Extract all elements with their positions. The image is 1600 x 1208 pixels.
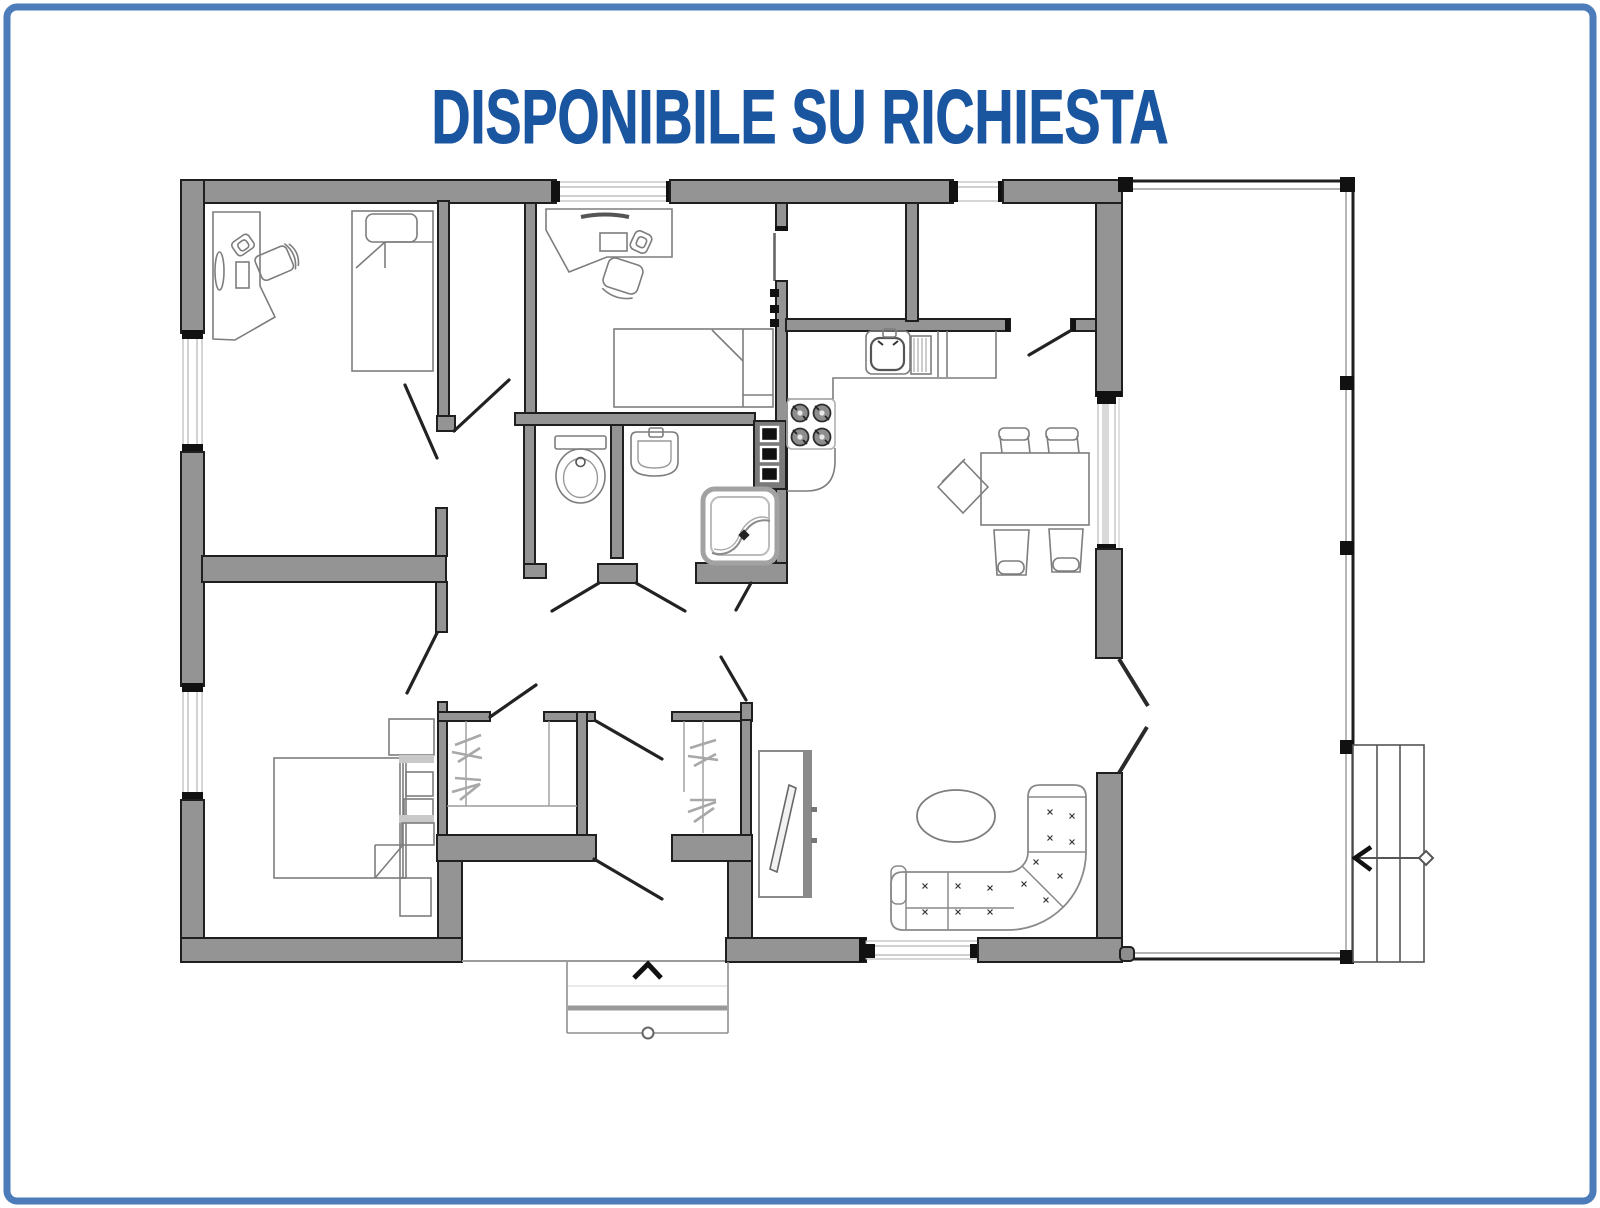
svg-text:DISPONIBILE SU RICHIESTA: DISPONIBILE SU RICHIESTA bbox=[432, 75, 1169, 160]
